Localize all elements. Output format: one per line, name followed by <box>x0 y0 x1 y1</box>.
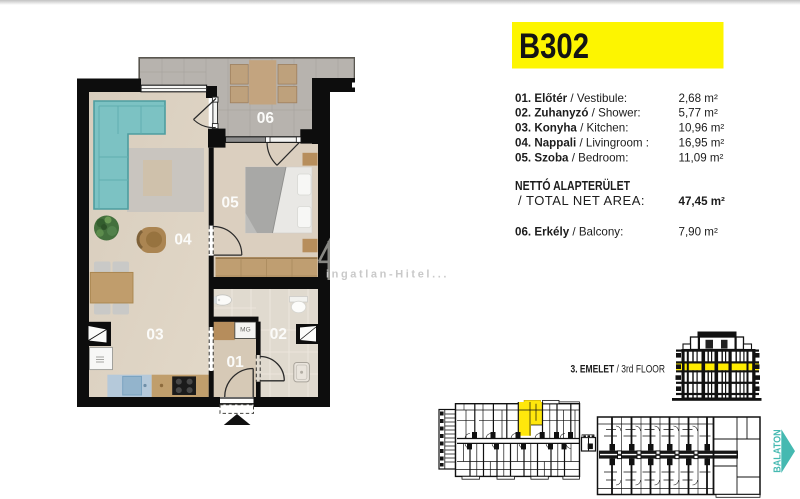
svg-text:BALATON: BALATON <box>773 429 784 473</box>
svg-text:01. Előtér / Vestibule:: 01. Előtér / Vestibule: <box>515 92 627 105</box>
svg-text:06. Erkély / Balcony:: 06. Erkély / Balcony: <box>515 225 623 238</box>
svg-text:04. Nappali / Livingroom :: 04. Nappali / Livingroom : <box>515 137 649 150</box>
svg-text:7,90 m²: 7,90 m² <box>679 225 718 238</box>
svg-text:10,96 m²: 10,96 m² <box>679 122 725 135</box>
svg-text:5,77 m²: 5,77 m² <box>679 107 718 120</box>
svg-text:03: 03 <box>146 327 164 344</box>
svg-text:04: 04 <box>174 232 192 249</box>
svg-text:16,95 m²: 16,95 m² <box>679 137 725 150</box>
svg-text:11,09 m²: 11,09 m² <box>679 151 724 164</box>
svg-text:47,45 m²: 47,45 m² <box>679 195 726 208</box>
svg-text:05: 05 <box>222 194 240 211</box>
svg-text:NETTÓ ALAPTERÜLET: NETTÓ ALAPTERÜLET <box>515 178 630 193</box>
svg-text:06: 06 <box>257 110 275 127</box>
svg-text:2,68 m²: 2,68 m² <box>679 92 718 105</box>
svg-text:ingatlan-Hitel...: ingatlan-Hitel... <box>326 269 449 281</box>
svg-text:B302: B302 <box>519 27 589 66</box>
svg-text:02. Zuhanyzó / Shower:: 02. Zuhanyzó / Shower: <box>515 107 641 120</box>
svg-text:3. EMELET / 3rd FLOOR: 3. EMELET / 3rd FLOOR <box>571 364 666 376</box>
svg-text:MG: MG <box>240 327 250 334</box>
svg-text:05. Szoba / Bedroom:: 05. Szoba / Bedroom: <box>515 151 628 164</box>
svg-text:/ TOTAL NET AREA:: / TOTAL NET AREA: <box>518 193 645 208</box>
svg-text:03. Konyha / Kitchen:: 03. Konyha / Kitchen: <box>515 122 628 135</box>
svg-text:02: 02 <box>270 326 287 343</box>
svg-text:01: 01 <box>227 354 245 371</box>
